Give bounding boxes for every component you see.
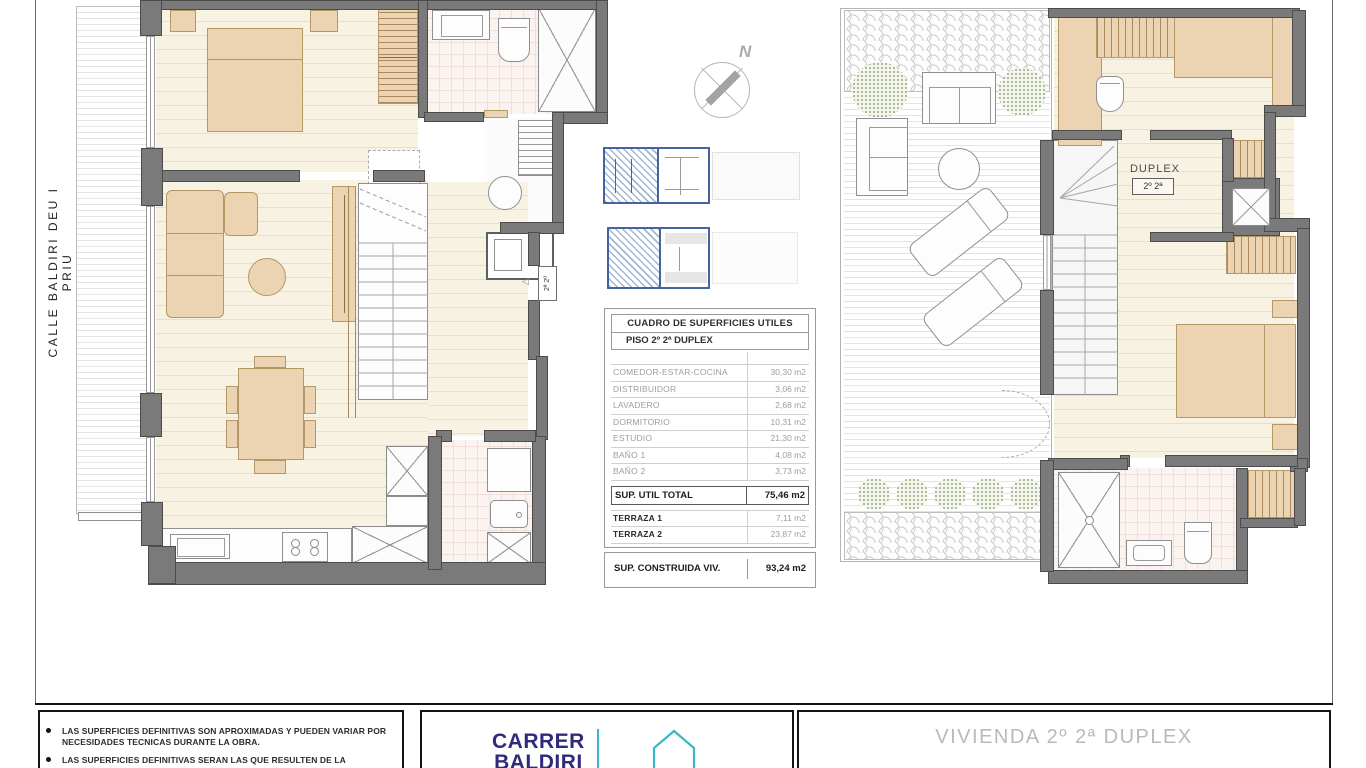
street-label: CALLE BALDIRI DEU I PRIU [46, 167, 74, 377]
wall [424, 112, 484, 122]
plant [896, 478, 928, 510]
wall [1165, 455, 1298, 467]
wall [148, 170, 300, 182]
wall [596, 0, 608, 120]
wall [1294, 468, 1306, 526]
desk-return [1174, 16, 1274, 78]
bullet-icon [46, 757, 51, 762]
brand-line1: CARRER [492, 731, 585, 752]
sheet-title: VIVIENDA 2º 2ª DUPLEX [797, 726, 1331, 749]
frame-left-line [35, 0, 36, 703]
wall [528, 232, 540, 266]
toilet [1184, 522, 1212, 564]
plant [998, 68, 1046, 116]
wall [1040, 460, 1054, 572]
duplex-unit-label: 2º 2ª [1132, 178, 1174, 195]
wall [1150, 232, 1234, 242]
dining-chair [254, 356, 286, 368]
table-subtitle: PISO 2º 2ª DUPLEX [612, 333, 808, 349]
door-sill [484, 110, 508, 118]
table-row [611, 352, 809, 365]
key-plan-lower-terrace [712, 232, 798, 284]
table-row: DORMITORIO10,31 m2 [611, 415, 809, 432]
table-row: COMEDOR-ESTAR-COCINA30,30 m2 [611, 365, 809, 382]
window [146, 36, 155, 148]
bathroom2-cabinet [487, 448, 531, 492]
wardrobe [1240, 470, 1296, 518]
sofa [166, 190, 224, 318]
bed-double [1176, 324, 1296, 418]
nightstand [310, 10, 338, 32]
wall [536, 356, 548, 440]
kitchen-sink [170, 534, 230, 559]
table-row: LAVADERO2,68 m2 [611, 398, 809, 415]
staircase-upper [1052, 140, 1118, 395]
nightstand [1272, 424, 1298, 450]
north-label: N [739, 42, 751, 62]
table-total-row: SUP. UTIL TOTAL75,46 m2 [611, 486, 809, 505]
table-row: ESTUDIO21,30 m2 [611, 431, 809, 448]
wall [552, 112, 564, 234]
plan-sheet: CALLE BALDIRI DEU I PRIU [0, 0, 1366, 768]
facade-pier [148, 546, 176, 584]
outdoor-table [938, 148, 980, 190]
balcony-terrace1 [76, 6, 148, 514]
duplex-label: DUPLEX [1124, 163, 1186, 175]
bathroom-sink [432, 10, 490, 40]
balcony-end-rail [78, 512, 146, 521]
wall [428, 436, 442, 570]
north-compass: N [692, 58, 756, 122]
plant [852, 62, 908, 118]
brand-divider [597, 729, 599, 768]
note-item: LAS SUPERFICIES DEFINITIVAS SON APROXIMA… [40, 726, 402, 747]
kitchen-cabinet [386, 496, 428, 526]
window [1043, 235, 1051, 290]
titleblock-top-line [35, 703, 1333, 705]
laundry-shelf [518, 120, 556, 176]
wardrobe [1232, 140, 1266, 178]
facade-pier [141, 502, 163, 546]
dining-chair [254, 460, 286, 474]
wall [1240, 518, 1298, 528]
wall [1297, 228, 1310, 468]
wall [1040, 140, 1054, 235]
key-plan-upper [603, 147, 710, 204]
entrance-unit-label: 2ª 2º [538, 266, 557, 301]
plant [972, 478, 1004, 510]
wall [1292, 10, 1306, 112]
bullet-icon [46, 728, 51, 733]
dining-chair [304, 420, 316, 448]
washing-machine [488, 176, 522, 210]
window [146, 437, 155, 502]
upper-shower [1058, 472, 1120, 568]
notes-box: LAS SUPERFICIES DEFINITIVAS SON APROXIMA… [38, 710, 404, 768]
table-row: DISTRIBUIDOR3,06 m2 [611, 382, 809, 399]
wall [148, 562, 546, 585]
dining-chair [226, 386, 238, 414]
facade-pier [140, 0, 162, 36]
wall [528, 300, 540, 360]
coffee-table [248, 258, 286, 296]
bathroom-sink [1126, 540, 1172, 566]
outdoor-armchair [856, 118, 908, 196]
wall [418, 0, 428, 118]
brand-line2: BALDIRI [492, 752, 585, 768]
wall [1048, 570, 1248, 584]
cooktop [282, 532, 328, 562]
wall [148, 0, 608, 10]
wardrobe [378, 8, 418, 104]
surfaces-table: CUADRO DE SUPERFICIES UTILES PISO 2º 2ª … [604, 308, 816, 548]
frame-right-line [1332, 0, 1333, 703]
bathroom2-shower [487, 532, 531, 564]
table-row: BAÑO 23,73 m2 [611, 464, 809, 481]
facade-pier [140, 393, 162, 437]
house-icon [650, 728, 698, 768]
wall [1048, 458, 1128, 470]
built-surface-box: SUP. CONSTRUIDA VIV.93,24 m2 [604, 552, 816, 588]
dining-table [238, 368, 304, 460]
toilet [498, 18, 530, 62]
wall [1040, 290, 1054, 395]
key-plan-upper-terrace [712, 152, 800, 200]
brand-logo: CARRER BALDIRI [492, 731, 585, 768]
plant [858, 478, 890, 510]
nightstand [170, 10, 196, 32]
entrance-arrow-icon: ◁ [522, 276, 529, 287]
wall [1052, 130, 1122, 140]
shower-tray [538, 8, 596, 112]
kitchen-tall-unit [352, 526, 428, 564]
sofa-chaise [224, 192, 258, 236]
dining-chair [226, 420, 238, 448]
dining-chair [304, 386, 316, 414]
wall [1048, 8, 1300, 18]
bed-double [207, 28, 303, 132]
wall [373, 170, 425, 182]
nightstand [1272, 300, 1298, 318]
note-item: LAS SUPERFICIES DEFINITIVAS SERAN LAS QU… [40, 755, 402, 766]
wardrobe [1096, 16, 1176, 58]
bathroom2-sink [490, 500, 528, 528]
wall [1222, 138, 1234, 182]
roof-tiles-bottom [844, 512, 1050, 560]
office-chair [1096, 76, 1124, 112]
window [146, 206, 155, 393]
key-plan-lower [607, 227, 710, 289]
facade-pier [141, 148, 163, 206]
table-row: BAÑO 14,08 m2 [611, 448, 809, 465]
wardrobe [1226, 236, 1296, 274]
kitchen-column-unit [386, 446, 428, 496]
wall [1150, 130, 1232, 140]
stair-balustrade [348, 186, 358, 418]
staircase [358, 183, 428, 400]
elevator-car [1232, 188, 1270, 226]
wall [484, 430, 536, 442]
table-row: TERRAZA 17,11 m2 [611, 510, 809, 528]
brand-box [420, 710, 794, 768]
table-title: CUADRO DE SUPERFICIES UTILES [612, 315, 808, 333]
table-row: TERRAZA 223,87 m2 [611, 527, 809, 544]
hall-floor [428, 182, 528, 436]
outdoor-sofa [922, 72, 996, 124]
plant [1010, 478, 1042, 510]
plant [934, 478, 966, 510]
